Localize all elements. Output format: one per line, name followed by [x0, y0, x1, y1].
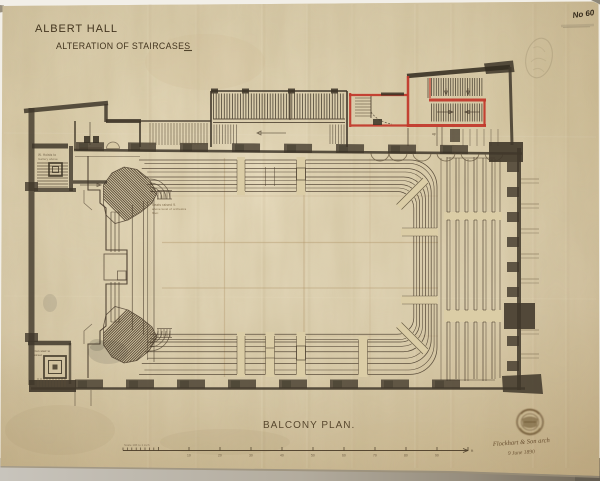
svg-text:Gallery above: Gallery above	[38, 157, 58, 161]
svg-text:50: 50	[311, 454, 315, 458]
svg-text:street: street	[34, 353, 42, 357]
svg-text:floor.: floor.	[152, 211, 159, 215]
svg-text:BALCONY PLAN.: BALCONY PLAN.	[263, 420, 355, 431]
svg-text:10: 10	[187, 454, 191, 458]
svg-text:70: 70	[373, 454, 377, 458]
svg-text:ALTERATION OF STAIRCASES: ALTERATION OF STAIRCASES	[56, 41, 191, 51]
svg-text:30: 30	[249, 454, 253, 458]
svg-text:up: up	[432, 132, 436, 136]
svg-text:Scale 10ft to 1 inch: Scale 10ft to 1 inch	[124, 443, 150, 447]
svg-text:ALBERT HALL: ALBERT HALL	[35, 23, 118, 35]
svg-text:40: 40	[280, 454, 284, 458]
svg-text:80: 80	[404, 454, 408, 458]
svg-text:60: 60	[342, 454, 346, 458]
svg-text:20: 20	[218, 454, 222, 458]
svg-text:90: 90	[435, 454, 439, 458]
